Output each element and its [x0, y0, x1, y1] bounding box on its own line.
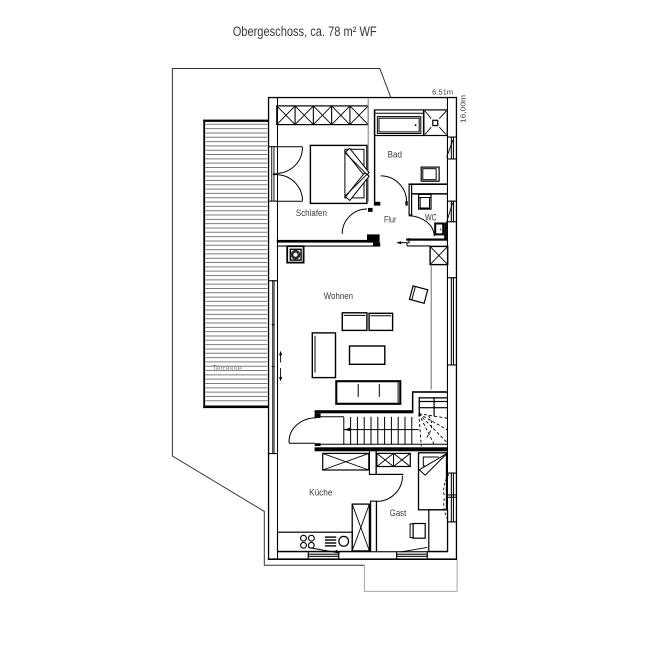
svg-text:Küche: Küche	[309, 488, 332, 498]
svg-text:Terrasse: Terrasse	[212, 364, 242, 373]
svg-text:16,00m: 16,00m	[459, 95, 468, 123]
svg-text:Schlafen: Schlafen	[296, 208, 327, 218]
svg-text:Obergeschoss, ca. 78 m² WF: Obergeschoss, ca. 78 m² WF	[233, 24, 377, 39]
svg-text:Wohnen: Wohnen	[324, 291, 353, 301]
svg-text:Flur: Flur	[384, 215, 396, 225]
svg-text:Gast: Gast	[390, 508, 407, 518]
svg-text:Bad: Bad	[388, 150, 402, 160]
svg-text:6.51m: 6.51m	[432, 87, 453, 96]
svg-text:WC: WC	[425, 213, 437, 223]
